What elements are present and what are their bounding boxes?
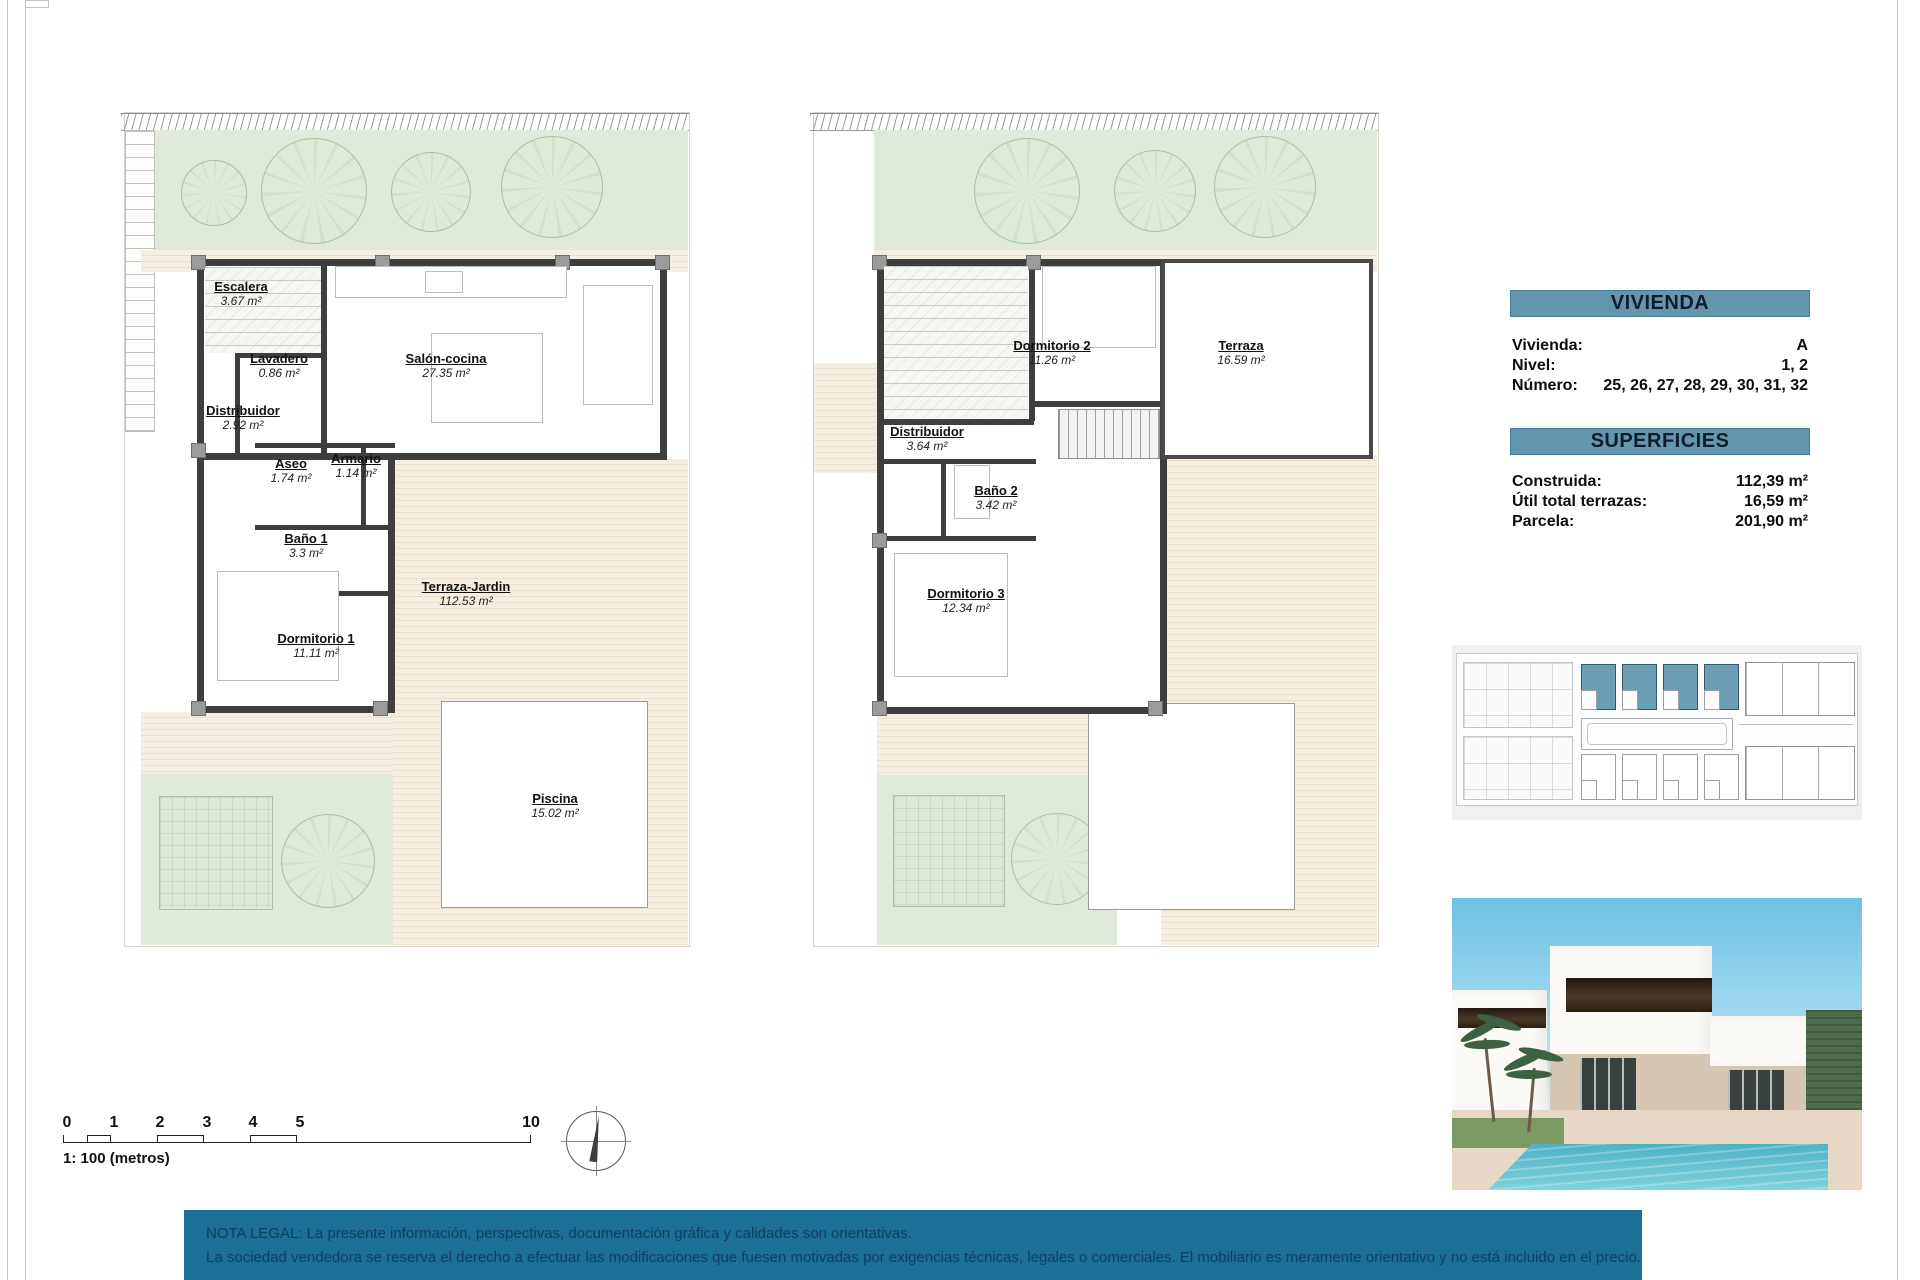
site-pool <box>1581 718 1733 750</box>
tree-icon <box>1214 136 1316 238</box>
room-label-bano2: Baño 2 3.42 m² <box>974 483 1017 513</box>
room-area: 3.3 m² <box>284 546 327 561</box>
garden-bottom <box>877 775 1117 945</box>
column-marker <box>191 443 206 458</box>
scale-end-tick <box>63 1135 64 1143</box>
site-boundary <box>1456 653 1858 806</box>
column-marker <box>191 255 206 270</box>
vivienda-row: Número: 25, 26, 27, 28, 29, 30, 31, 32 <box>1512 376 1808 395</box>
scale-baseline <box>63 1142 531 1143</box>
wall <box>941 459 946 541</box>
tree-icon <box>501 136 603 238</box>
tree-icon <box>391 152 471 232</box>
frame-line-right <box>1897 0 1898 1280</box>
row-value: 25, 26, 27, 28, 29, 30, 31, 32 <box>1603 376 1808 395</box>
room-label-distribuidor: Distribuidor 3.64 m² <box>890 424 964 454</box>
scale-tick: 10 <box>522 1114 540 1132</box>
unit-notch <box>1663 780 1679 800</box>
room-area: 11.26 m² <box>1013 353 1090 368</box>
pool-void-outline <box>1088 703 1295 910</box>
room-label-dormitorio3: Dormitorio 3 12.34 m² <box>927 586 1004 616</box>
hedge-patch <box>159 796 273 910</box>
ground-floor-plan: Escalera 3.67 m² Lavadero 0.86 m² Salón-… <box>124 112 690 947</box>
palm-frond <box>1506 1070 1552 1079</box>
garden-area <box>874 130 1377 250</box>
room-name: Baño 2 <box>974 483 1017 498</box>
room-name: Distribuidor <box>890 424 964 439</box>
room-label-piscina: Piscina 15.02 m² <box>531 791 578 821</box>
room-area: 2.92 m² <box>206 418 280 433</box>
room-name: Dormitorio 3 <box>927 586 1004 601</box>
roof-strip <box>814 363 877 473</box>
compass-icon <box>566 1111 626 1171</box>
room-area: 0.86 m² <box>250 366 308 381</box>
villa-right-wing <box>1710 1016 1816 1068</box>
first-floor-plan: Dormitorio 2 11.26 m² Terraza 16.59 m² D… <box>813 112 1379 947</box>
row-label: Vivienda: <box>1512 336 1583 355</box>
room-area: 15.02 m² <box>531 806 578 821</box>
scale-bar: 0 1 2 3 4 5 10 1: 100 (metros) <box>63 1114 543 1170</box>
room-label-dormitorio2: Dormitorio 2 11.26 m² <box>1013 338 1090 368</box>
tree-icon <box>1114 150 1196 232</box>
scale-tick: 1 <box>110 1114 119 1132</box>
column-marker <box>1148 701 1163 716</box>
pool-water <box>1488 1144 1828 1190</box>
villa-window-band <box>1566 978 1712 1012</box>
site-unit <box>1704 754 1739 800</box>
room-label-salon-cocina: Salón-cocina 27.35 m² <box>406 351 487 381</box>
row-label: Parcela: <box>1512 512 1574 531</box>
site-units-left-bottom <box>1463 736 1573 800</box>
tree-icon <box>261 138 367 244</box>
room-label-dormitorio1: Dormitorio 1 11.11 m² <box>277 631 354 661</box>
row-value: 201,90 m² <box>1735 512 1808 531</box>
apartment-block-bottom <box>1745 746 1855 800</box>
room-area: 12.34 m² <box>927 601 1004 616</box>
highlighted-unit <box>1622 664 1657 710</box>
glass-door <box>1728 1070 1784 1114</box>
stair-treads <box>884 266 1028 418</box>
wall <box>884 536 1036 541</box>
room-name: Piscina <box>531 791 578 806</box>
room-area: 112.53 m² <box>422 594 511 609</box>
hedge-patch <box>893 795 1005 907</box>
site-unit <box>1622 754 1657 800</box>
scale-tooth <box>157 1135 204 1143</box>
unit-notch <box>1581 690 1597 710</box>
highlighted-unit <box>1581 664 1616 710</box>
room-name: Dormitorio 1 <box>277 631 354 646</box>
room-label-lavadero: Lavadero 0.86 m² <box>250 351 308 381</box>
floorplan-sheet: Escalera 3.67 m² Lavadero 0.86 m² Salón-… <box>0 0 1920 1280</box>
room-name: Terraza-Jardin <box>422 579 511 594</box>
room-area: 3.67 m² <box>214 294 268 309</box>
room-name: Escalera <box>214 279 268 294</box>
wall <box>321 263 327 459</box>
unit-notch <box>1704 690 1720 710</box>
frame-line-left-outer <box>7 0 8 1280</box>
row-label: Nivel: <box>1512 356 1556 375</box>
room-area: 1.74 m² <box>271 471 312 486</box>
unit-notch <box>1581 780 1597 800</box>
exterior-stair <box>125 130 155 432</box>
site-units-left-top <box>1463 662 1573 728</box>
room-area: 1.14 m² <box>331 466 381 481</box>
terrace-room <box>1161 259 1373 459</box>
room-area: 3.64 m² <box>890 439 964 454</box>
room-name: Salón-cocina <box>406 351 487 366</box>
tree-icon <box>181 160 247 226</box>
pergola-hatch <box>121 113 689 131</box>
unit-notch <box>1704 780 1720 800</box>
legal-notice: NOTA LEGAL: La presente información, per… <box>184 1210 1642 1280</box>
tree-icon <box>974 138 1080 244</box>
vivienda-row: Nivel: 1, 2 <box>1512 356 1808 375</box>
room-label-terraza: Terraza 16.59 m² <box>1217 338 1264 368</box>
unit-notch <box>1622 780 1638 800</box>
room-label-terraza-jardin: Terraza-Jardin 112.53 m² <box>422 579 511 609</box>
site-unit <box>1581 754 1616 800</box>
unit-notch <box>1663 690 1679 710</box>
grass <box>1452 1118 1564 1148</box>
superficies-header: SUPERFICIES <box>1510 428 1810 455</box>
superficies-row: Construida: 112,39 m² <box>1512 472 1808 491</box>
row-label: Útil total terrazas: <box>1512 492 1647 511</box>
room-label-distribuidor: Distribuidor 2.92 m² <box>206 403 280 433</box>
wardrobe <box>1058 409 1160 459</box>
scale-end-tick <box>530 1135 531 1143</box>
room-area: 3.42 m² <box>974 498 1017 513</box>
wall <box>255 525 395 530</box>
room-label-aseo: Aseo 1.74 m² <box>271 456 312 486</box>
scale-caption: 1: 100 (metros) <box>63 1150 170 1167</box>
scale-tick: 2 <box>156 1114 165 1132</box>
scale-tick: 3 <box>203 1114 212 1132</box>
scale-tooth <box>250 1135 297 1143</box>
site-road-line <box>1739 724 1853 725</box>
row-label: Número: <box>1512 376 1578 395</box>
bed <box>1042 266 1156 348</box>
legal-line-2: La sociedad vendedora se reserva el dere… <box>206 1246 1642 1270</box>
legal-line-1: NOTA LEGAL: La presente información, per… <box>206 1222 1642 1246</box>
scale-tooth <box>87 1135 111 1143</box>
vivienda-header: VIVIENDA <box>1510 290 1810 317</box>
frame-notch <box>25 0 49 8</box>
column-marker <box>373 701 388 716</box>
terrace-path <box>141 712 393 774</box>
frame-line-left-inner <box>25 0 26 1280</box>
room-area: 27.35 m² <box>406 366 487 381</box>
column-marker <box>872 533 887 548</box>
wall <box>255 443 395 448</box>
highlighted-unit <box>1663 664 1698 710</box>
room-area: 16.59 m² <box>1217 353 1264 368</box>
garden-bottom <box>141 774 393 945</box>
wall <box>884 459 1036 464</box>
site-unit <box>1663 754 1698 800</box>
sofa <box>583 285 653 405</box>
column-marker <box>191 701 206 716</box>
room-name: Distribuidor <box>206 403 280 418</box>
bed <box>217 571 339 681</box>
villa-render <box>1452 898 1862 1190</box>
garden-area <box>141 130 688 250</box>
row-value: 112,39 m² <box>1736 472 1808 491</box>
room-name: Terraza <box>1217 338 1264 353</box>
site-keyplan <box>1452 645 1862 820</box>
row-label: Construida: <box>1512 472 1602 491</box>
unit-notch <box>1622 690 1638 710</box>
room-name: Armario <box>331 451 381 466</box>
room-area: 11.11 m² <box>277 646 354 661</box>
tree-icon <box>281 814 375 908</box>
room-label-armario: Armario 1.14 m² <box>331 451 381 481</box>
apartment-block-top <box>1745 662 1855 716</box>
pergola-hatch <box>810 113 1378 131</box>
room-name: Aseo <box>271 456 312 471</box>
unit-row <box>1581 754 1739 800</box>
highlighted-unit <box>1704 664 1739 710</box>
kitchen-sink <box>425 271 463 293</box>
row-value: 16,59 m² <box>1744 492 1808 511</box>
row-value: A <box>1796 336 1808 355</box>
glass-door <box>1580 1058 1636 1114</box>
superficies-row: Útil total terrazas: 16,59 m² <box>1512 492 1808 511</box>
superficies-row: Parcela: 201,90 m² <box>1512 512 1808 531</box>
room-name: Dormitorio 2 <box>1013 338 1090 353</box>
column-marker <box>1026 255 1041 270</box>
room-label-escalera: Escalera 3.67 m² <box>214 279 268 309</box>
column-marker <box>872 701 887 716</box>
scale-tick: 0 <box>63 1114 72 1132</box>
room-label-bano1: Baño 1 3.3 m² <box>284 531 327 561</box>
scale-tick: 4 <box>249 1114 258 1132</box>
room-name: Lavadero <box>250 351 308 366</box>
room-name: Baño 1 <box>284 531 327 546</box>
scale-tick: 5 <box>296 1114 305 1132</box>
wall <box>1035 401 1161 407</box>
column-marker <box>655 255 670 270</box>
row-value: 1, 2 <box>1781 356 1808 375</box>
highlighted-unit-row <box>1581 664 1739 710</box>
vivienda-row: Vivienda: A <box>1512 336 1808 355</box>
